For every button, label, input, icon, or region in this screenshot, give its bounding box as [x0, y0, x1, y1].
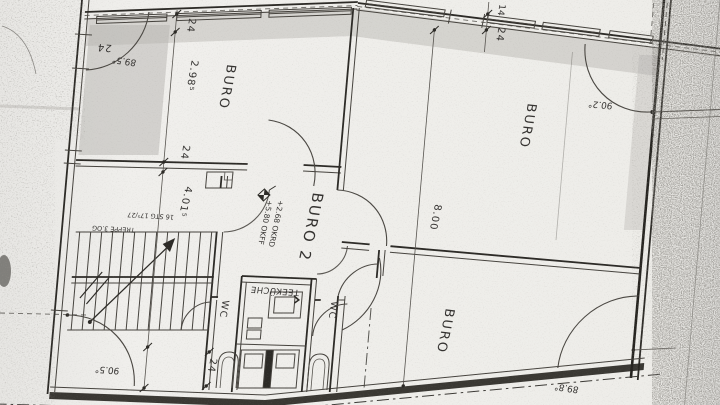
floor-plan-svg: BURO BURO BURO BURO 2 +5.80 OKFF +2.68 O…	[0, 0, 720, 405]
scanned-floor-plan: BURO BURO BURO BURO 2 +5.80 OKFF +2.68 O…	[0, 0, 720, 405]
noise-overall	[0, 0, 720, 405]
